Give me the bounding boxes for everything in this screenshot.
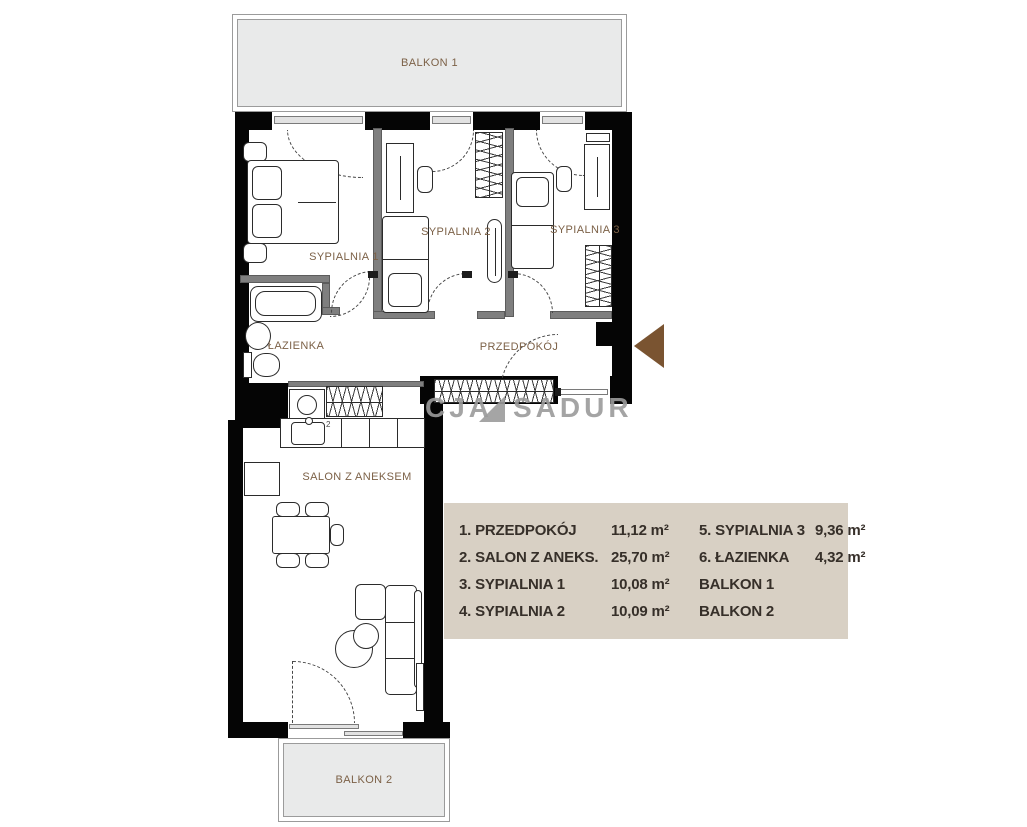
partition-wall (477, 311, 505, 319)
legend-room-area: 10,08 m² (611, 576, 699, 593)
legend-room-name: 3. SYPIALNIA 1 (459, 576, 611, 593)
wall-segment (228, 420, 243, 738)
legend-room-area: 10,09 m² (611, 603, 699, 620)
bathroom-label: ŁAZIENKA (268, 340, 324, 352)
balcony-2-area: BALKON 2 (278, 738, 450, 822)
legend-room-name: 4. SYPIALNIA 2 (459, 603, 611, 620)
wardrobe (585, 245, 612, 307)
door-hinge (462, 271, 472, 278)
hallway-label: PRZEDPOKÓJ (480, 341, 559, 353)
kitchen-counter (280, 418, 425, 448)
dining-chair (305, 553, 329, 568)
pillow (252, 166, 282, 200)
balcony-2-floor: BALKON 2 (283, 743, 445, 817)
bedroom3-door-swing-arc (513, 273, 553, 313)
sofa-chaise (355, 584, 386, 620)
bedroom3-label: SYPIALNIA 3 (550, 224, 620, 236)
legend-room-name: 2. SALON Z ANEKS. (459, 549, 611, 566)
pillow (252, 204, 282, 238)
bed-linen-line (512, 225, 553, 226)
desk-line (400, 156, 401, 200)
dining-table (272, 516, 330, 554)
legend-room-name: BALKON 2 (699, 603, 815, 620)
legend-room-area: 11,12 m² (611, 522, 699, 539)
coffee-table-small (353, 623, 379, 649)
bedroom1-label: SYPIALNIA 1 (309, 251, 379, 263)
floor-plan: BALKON 1 (0, 0, 1027, 827)
fridge (244, 462, 280, 496)
legend-room-area (815, 576, 865, 593)
bed-linen-line (383, 259, 428, 260)
bed-linen-line (298, 202, 336, 203)
sofa (385, 585, 417, 695)
balcony-door-leaf (344, 731, 403, 736)
bedroom2-label: SYPIALNIA 2 (421, 226, 491, 238)
wardrobe (326, 386, 383, 417)
legend-room-name: 1. PRZEDPOKÓJ (459, 522, 611, 539)
chair (556, 166, 572, 192)
legend-room-area: 25,70 m² (611, 549, 699, 566)
washing-machine (289, 389, 325, 419)
faucet (305, 417, 313, 425)
balcony-1-label: BALKON 1 (401, 57, 458, 69)
desk (584, 144, 610, 210)
balcony-door-leaf (289, 724, 359, 729)
desk-line (597, 157, 598, 197)
balcony-door-window (432, 116, 471, 124)
partition-wall (373, 128, 382, 315)
balcony-door-swing-arc (432, 130, 474, 172)
balcony-1-area: BALKON 1 (232, 14, 627, 112)
washer-drum (297, 395, 317, 415)
legend-room-name: BALKON 1 (699, 576, 815, 593)
counter-line (341, 419, 342, 447)
toilet-bowl (253, 353, 280, 377)
balcony-door-window (542, 116, 583, 124)
entrance-arrow-icon (634, 324, 664, 368)
nightstand (243, 243, 267, 263)
single-bed (511, 172, 554, 269)
pillow (388, 273, 422, 307)
counter-line (369, 419, 370, 447)
sofa-cushion-line (386, 622, 416, 623)
pillow (516, 177, 549, 207)
legend-room-area: 4,32 m² (815, 549, 865, 566)
legend-room-area (815, 603, 865, 620)
dining-chair (276, 502, 300, 517)
bedroom2-door-swing-arc (427, 273, 467, 313)
legend-room-area: 9,36 m² (815, 522, 865, 539)
counter-line (397, 419, 398, 447)
kitchen-sink (291, 422, 325, 445)
balcony-2-label: BALKON 2 (335, 774, 392, 786)
desk-lamp (586, 133, 610, 142)
bathtub-inner (255, 291, 316, 316)
chair (417, 166, 433, 193)
partition-wall (240, 275, 330, 283)
balcony-door-window (274, 116, 363, 124)
bathtub (250, 286, 322, 322)
salon-balcony-door-swing-arc (293, 661, 355, 723)
sofa-cushion-line (386, 658, 416, 659)
entrance-door-leaf (559, 389, 608, 395)
wardrobe (434, 379, 554, 403)
area-legend: 1. PRZEDPOKÓJ 11,12 m² 5. SYPIALNIA 3 9,… (444, 503, 848, 639)
desk (386, 143, 414, 213)
legend-room-name: 6. ŁAZIENKA (699, 549, 815, 566)
wall-segment (424, 396, 443, 738)
dining-chair (305, 502, 329, 517)
door-hinge (368, 271, 378, 278)
tv (416, 663, 424, 711)
mirror-line (495, 228, 496, 276)
door-leaf-dashed (292, 661, 293, 723)
double-bed (247, 160, 339, 244)
wall-segment (612, 112, 632, 376)
balcony-1-floor: BALKON 1 (237, 19, 622, 107)
wardrobe (475, 132, 503, 198)
wall-segment (596, 322, 612, 346)
legend-room-name: 5. SYPIALNIA 3 (699, 522, 815, 539)
door-hinge (508, 271, 518, 278)
toilet-tank (243, 352, 252, 378)
dining-chair (330, 524, 344, 546)
dining-chair (276, 553, 300, 568)
nightstand (243, 142, 267, 162)
room-number-marker: 2 (326, 420, 330, 429)
partition-wall (550, 311, 612, 319)
livingroom-label: SALON Z ANEKSEM (302, 471, 411, 483)
